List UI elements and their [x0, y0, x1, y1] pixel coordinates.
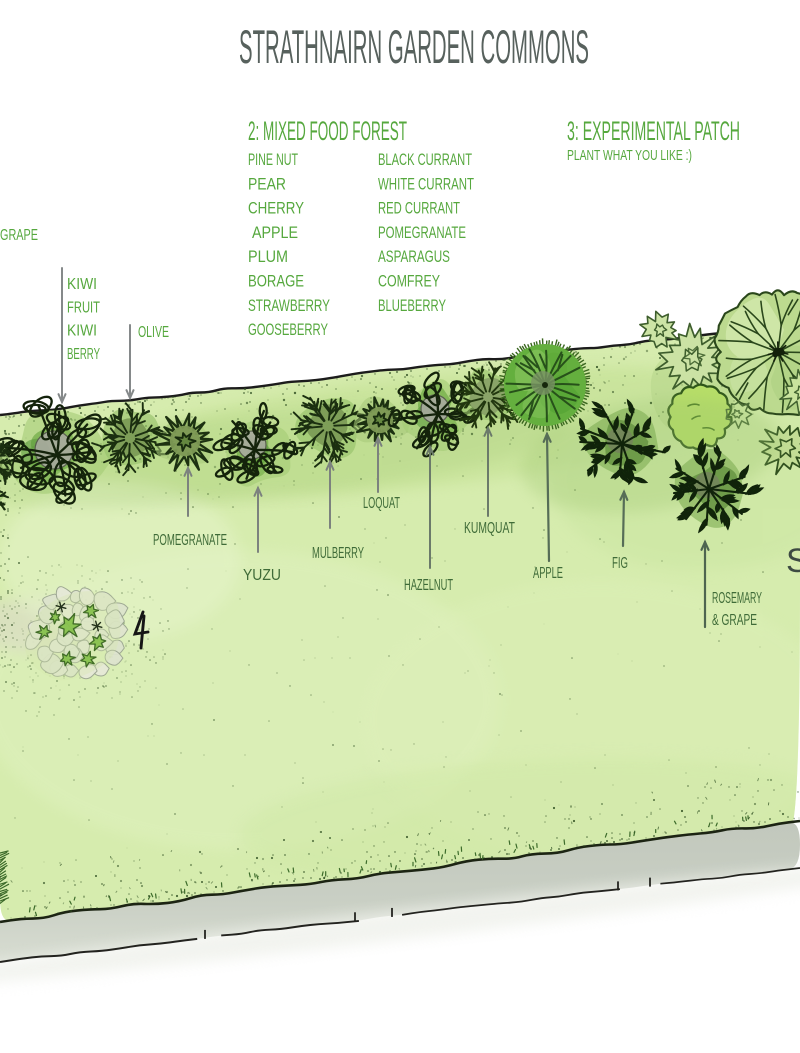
svg-text:FRUIT: FRUIT — [67, 299, 100, 316]
svg-text:STRATHNAIRN GARDEN COMMONS: STRATHNAIRN GARDEN COMMONS — [239, 20, 589, 73]
svg-text:STRAWBERRY: STRAWBERRY — [248, 296, 330, 315]
svg-text:BLACK CURRANT: BLACK CURRANT — [378, 150, 472, 169]
svg-text:ROSEMARY: ROSEMARY — [712, 590, 762, 607]
svg-text:HAZELNUT: HAZELNUT — [404, 577, 453, 594]
svg-text:BORAGE: BORAGE — [248, 272, 304, 291]
svg-text:SI: SI — [786, 542, 800, 580]
svg-text:KUMQUAT: KUMQUAT — [464, 520, 515, 537]
svg-text:PLANT WHAT YOU LIKE :): PLANT WHAT YOU LIKE :) — [567, 147, 692, 164]
svg-text:BERRY: BERRY — [67, 346, 100, 363]
svg-text:MULBERRY: MULBERRY — [312, 545, 364, 562]
svg-text:PINE NUT: PINE NUT — [248, 150, 298, 169]
svg-text:YUZU: YUZU — [243, 567, 281, 584]
svg-text:KIWI: KIWI — [67, 323, 97, 340]
svg-text:COMFREY: COMFREY — [378, 272, 440, 291]
svg-text:PEAR: PEAR — [248, 174, 286, 193]
svg-text:PLUM: PLUM — [248, 247, 288, 266]
svg-text:& GRAPE: & GRAPE — [712, 612, 757, 629]
svg-text:FIG: FIG — [612, 555, 628, 572]
svg-text:POMEGRANATE: POMEGRANATE — [153, 532, 227, 549]
svg-text:2: MIXED FOOD FOREST: 2: MIXED FOOD FOREST — [248, 116, 407, 146]
svg-text:OLIVE: OLIVE — [138, 324, 169, 341]
svg-text:APPLE: APPLE — [533, 565, 563, 582]
svg-text:BLUEBERRY: BLUEBERRY — [378, 296, 446, 315]
svg-text:APPLE: APPLE — [252, 223, 298, 242]
svg-text:LOQUAT: LOQUAT — [363, 495, 400, 512]
svg-text:ASPARAGUS: ASPARAGUS — [378, 247, 450, 266]
svg-text:GRAPE: GRAPE — [0, 227, 38, 244]
svg-text:3: EXPERIMENTAL PATCH: 3: EXPERIMENTAL PATCH — [567, 116, 740, 146]
svg-text:RED CURRANT: RED CURRANT — [378, 199, 460, 218]
svg-text:GOOSEBERRY: GOOSEBERRY — [248, 320, 328, 339]
svg-text:CHERRY: CHERRY — [248, 199, 304, 218]
svg-text:POMEGRANATE: POMEGRANATE — [378, 223, 466, 242]
svg-text:KIWI: KIWI — [67, 276, 97, 293]
svg-text:WHITE CURRANT: WHITE CURRANT — [378, 174, 474, 193]
